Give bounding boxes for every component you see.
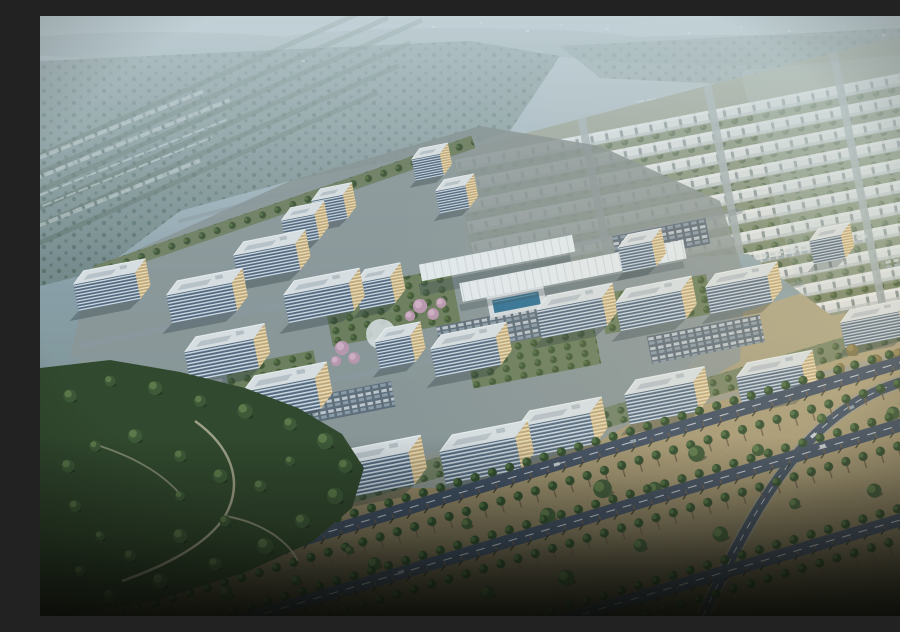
bottom-vignette (40, 436, 900, 616)
aerial-render (40, 16, 900, 616)
scene-canvas (40, 16, 900, 616)
